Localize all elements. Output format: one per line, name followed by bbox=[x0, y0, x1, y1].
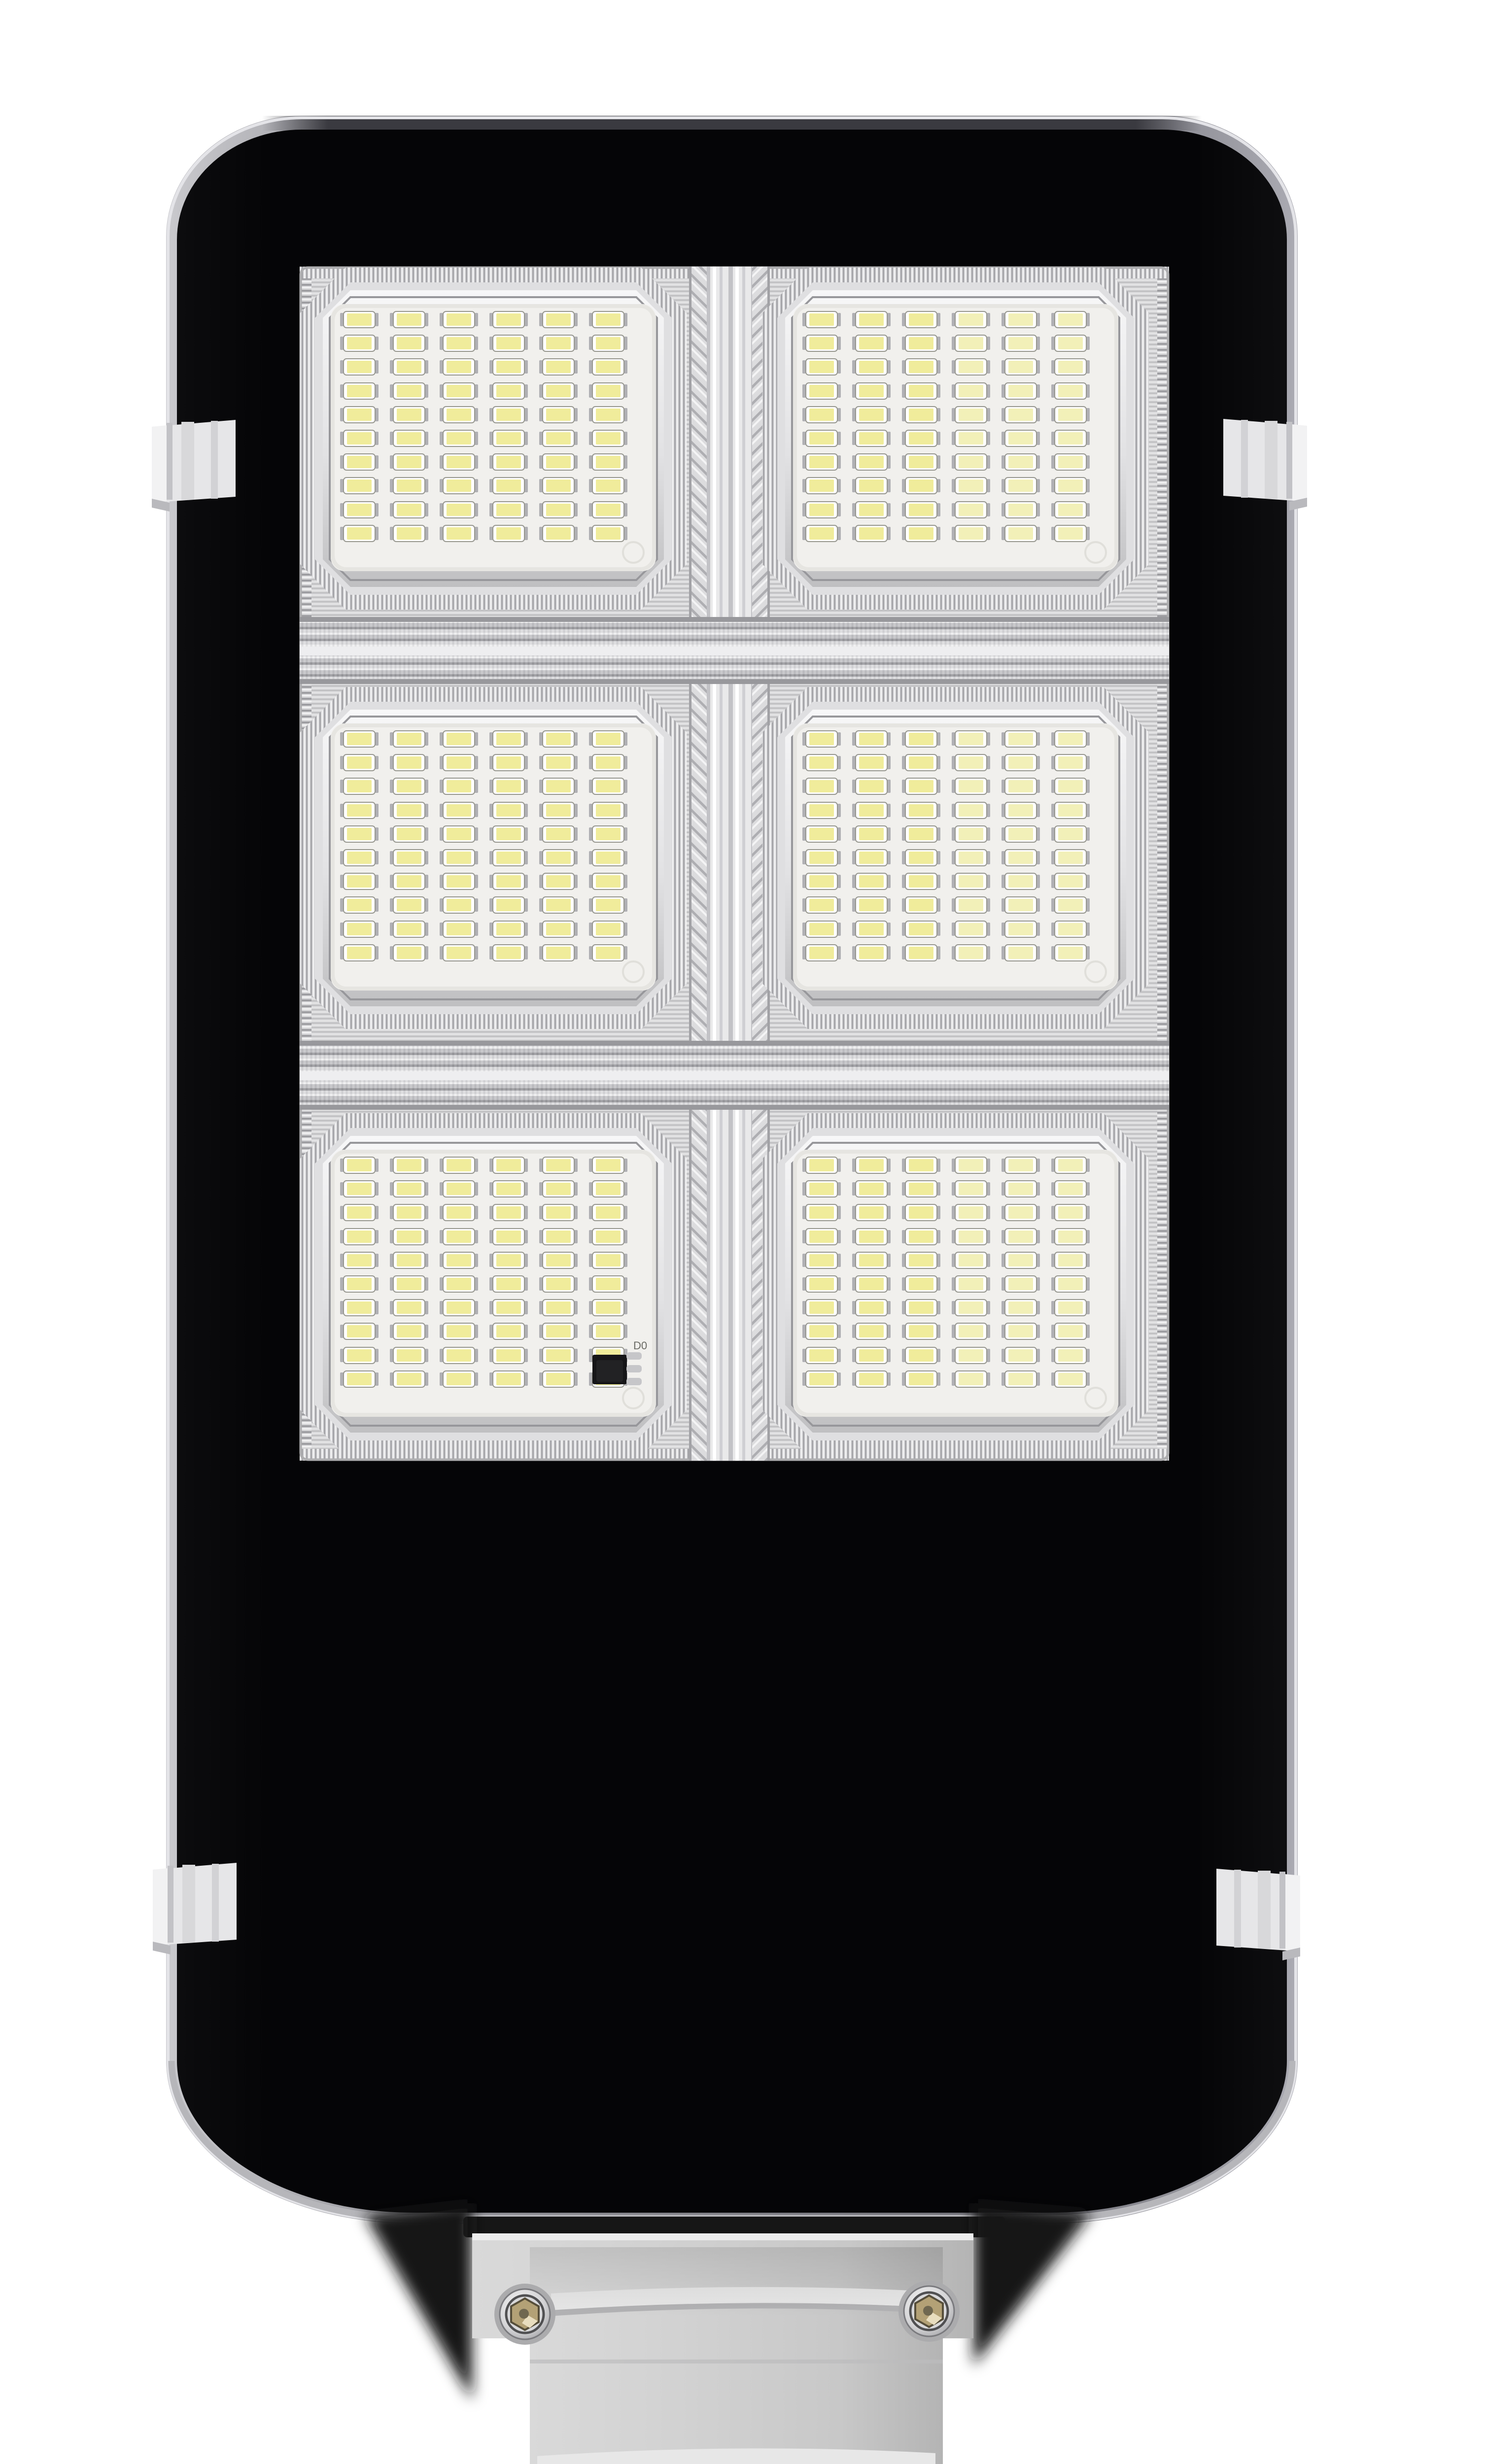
svg-text:D0: D0 bbox=[633, 1339, 647, 1352]
